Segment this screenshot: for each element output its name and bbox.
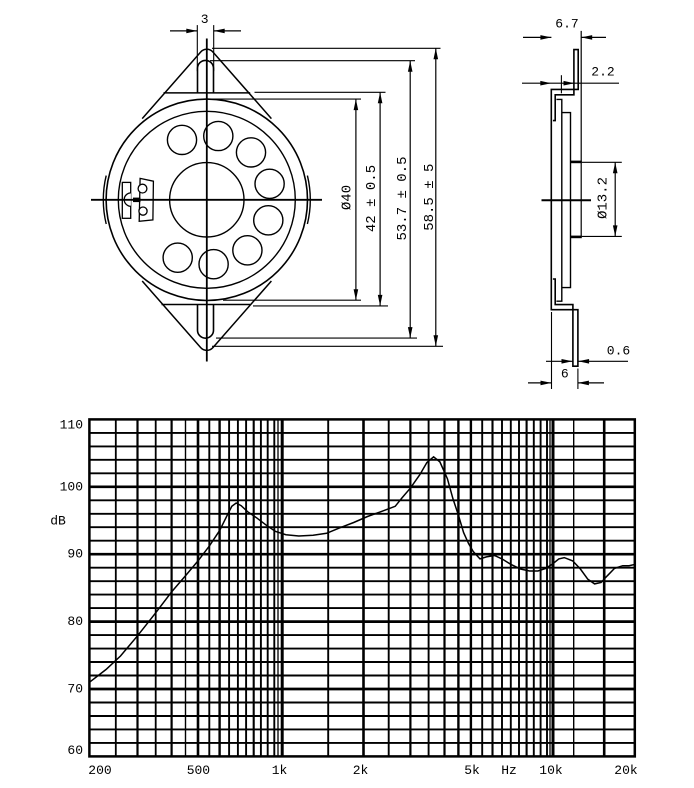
svg-text:90: 90 [67,547,83,562]
svg-text:80: 80 [67,614,83,629]
svg-text:53.7 ± 0.5: 53.7 ± 0.5 [395,156,411,240]
svg-text:500: 500 [187,763,210,778]
svg-text:2.2: 2.2 [591,65,614,80]
svg-text:60: 60 [67,743,83,758]
svg-text:100: 100 [60,479,83,494]
svg-text:3: 3 [201,12,209,27]
svg-text:6: 6 [561,367,569,382]
svg-text:0.6: 0.6 [607,344,630,359]
svg-text:42 ± 0.5: 42 ± 0.5 [364,165,380,232]
svg-text:5k: 5k [464,763,480,778]
svg-text:1k: 1k [272,763,288,778]
svg-text:58.5 ± 5: 58.5 ± 5 [422,164,438,231]
svg-text:6.7: 6.7 [555,17,578,32]
svg-text:110: 110 [60,418,83,433]
svg-text:2k: 2k [353,763,369,778]
svg-text:200: 200 [88,763,111,778]
svg-text:70: 70 [67,682,83,697]
svg-text:10k: 10k [539,763,563,778]
svg-text:dB: dB [50,514,66,529]
svg-text:Ø13.2: Ø13.2 [595,177,611,219]
svg-text:Ø40: Ø40 [340,185,356,210]
svg-text:20k: 20k [614,763,638,778]
svg-text:Hz: Hz [501,763,517,778]
